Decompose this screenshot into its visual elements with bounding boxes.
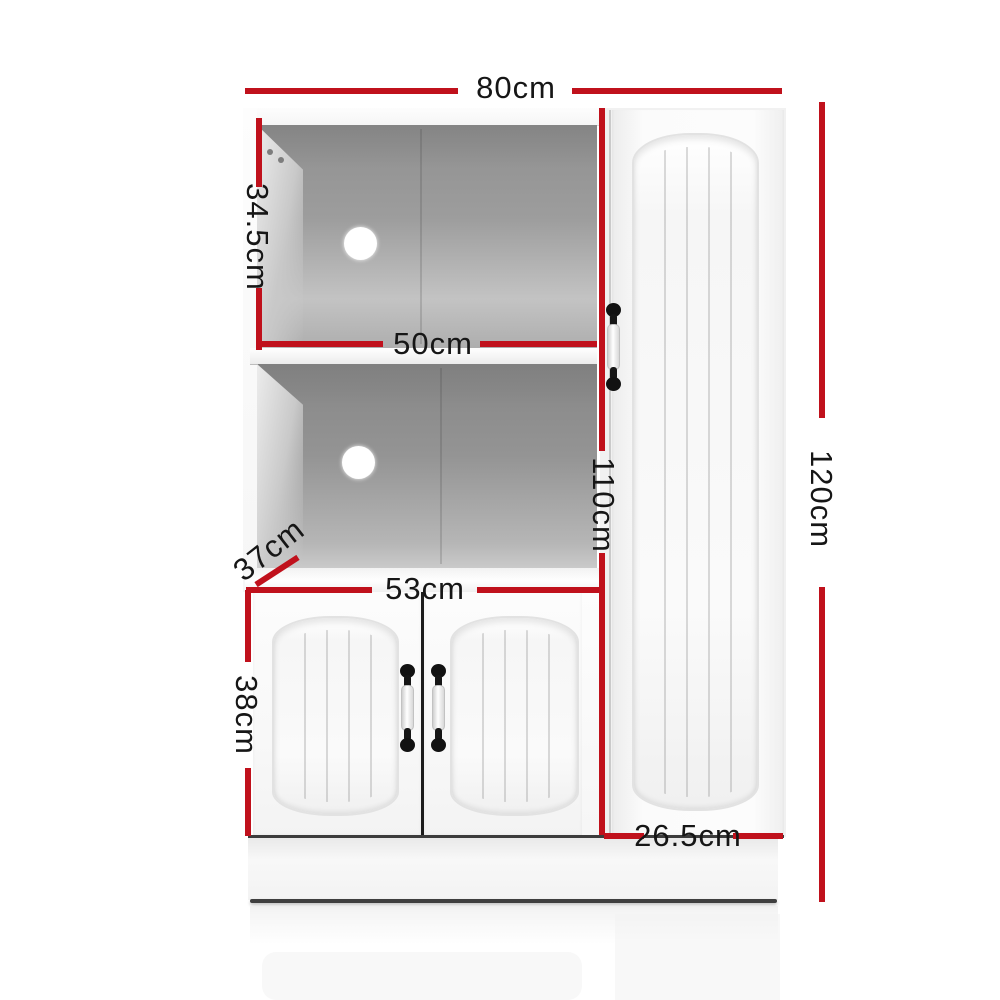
- dim-50cm-line-right: [480, 341, 597, 347]
- cabinet: [0, 0, 1000, 1000]
- floor-shadow: [250, 899, 777, 903]
- dim-110cm-line-bottom: [599, 553, 605, 835]
- dim-53cm-line-right: [477, 587, 600, 593]
- dim-50cm-line-left: [257, 341, 383, 347]
- dim-53cm-line-left: [246, 587, 372, 593]
- dim-120cm-line-bottom: [819, 587, 825, 902]
- dim-34.5cm-line-top: [256, 118, 262, 187]
- dim-120cm-line-top: [819, 102, 825, 418]
- dim-label-lower-section-width: 53cm: [385, 571, 465, 607]
- dim-label-upper-shelf-height: 34.5cm: [239, 183, 275, 291]
- product-dimension-diagram: 80cm 34.5cm 50cm 110cm 120cm 37cm 53cm 3…: [0, 0, 1000, 1000]
- lower-right-door-handle: [431, 664, 446, 752]
- handle-shaft: [432, 685, 445, 731]
- dim-label-tall-door-width: 26.5cm: [634, 818, 742, 854]
- tall-door-handle: [606, 303, 621, 391]
- panel-grooves: [462, 630, 567, 802]
- handle-shaft: [401, 685, 414, 731]
- cable-hole-lower: [342, 446, 375, 479]
- dim-110cm-line-top: [599, 108, 605, 451]
- open-shelf-upper: [257, 125, 597, 348]
- handle-knob-bottom: [400, 738, 415, 752]
- lower-door-left-panel: [272, 616, 399, 816]
- shelf-pin-hole: [267, 149, 273, 155]
- cable-hole-upper: [344, 227, 377, 260]
- reflection-tall-door: [615, 914, 780, 1000]
- lower-right-stile: [582, 592, 600, 837]
- handle-knob-bottom: [606, 377, 621, 391]
- back-panel-seam: [440, 368, 442, 564]
- handle-shaft: [607, 324, 620, 370]
- dim-label-lower-door-height: 38cm: [228, 675, 264, 755]
- panel-grooves: [284, 630, 387, 802]
- compartment-ceiling-shadow: [257, 364, 597, 406]
- handle-knob-bottom: [431, 738, 446, 752]
- dim-80cm-line-left: [245, 88, 458, 94]
- tall-door-panel: [632, 133, 759, 811]
- dim-38cm-line-bottom: [245, 768, 251, 836]
- dim-label-shelf-interior-width: 50cm: [393, 326, 473, 362]
- lower-door-right-panel: [450, 616, 579, 816]
- dim-label-top-width: 80cm: [476, 70, 556, 106]
- panel-grooves: [644, 147, 747, 797]
- compartment-ceiling-shadow: [257, 125, 597, 167]
- reflection-doors: [262, 952, 582, 1000]
- cabinet-top-panel: [243, 108, 600, 126]
- lower-left-door-handle: [400, 664, 415, 752]
- dim-38cm-line-top: [245, 590, 251, 662]
- back-panel-seam: [420, 129, 422, 344]
- dim-80cm-line-right: [572, 88, 782, 94]
- dim-label-left-section-height: 110cm: [585, 457, 621, 553]
- dim-label-overall-height: 120cm: [803, 450, 839, 548]
- shelf-pin-hole: [278, 157, 284, 163]
